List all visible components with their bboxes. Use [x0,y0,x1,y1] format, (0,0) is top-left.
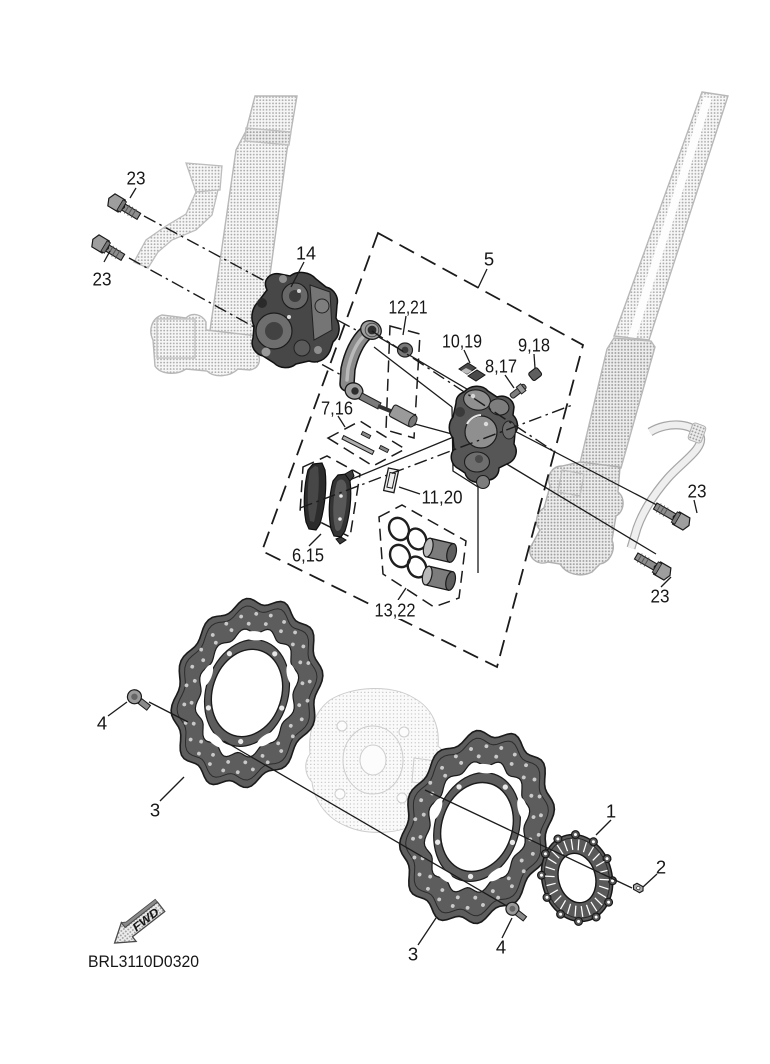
svg-text:1: 1 [606,801,616,822]
svg-text:2: 2 [656,857,666,878]
svg-text:5: 5 [484,249,494,270]
svg-text:8,17: 8,17 [485,356,517,377]
svg-text:3: 3 [408,944,418,965]
svg-text:12,21: 12,21 [389,297,428,318]
svg-text:23: 23 [127,168,146,189]
svg-text:4: 4 [496,937,506,958]
svg-text:23: 23 [93,269,112,290]
svg-text:6,15: 6,15 [292,545,324,566]
svg-text:3: 3 [150,800,160,821]
svg-text:4: 4 [97,713,107,734]
svg-text:11,20: 11,20 [422,487,463,508]
svg-text:23: 23 [651,586,670,607]
svg-text:10,19: 10,19 [442,331,482,352]
svg-text:14: 14 [296,243,316,264]
svg-text:BRL3110D0320: BRL3110D0320 [88,953,199,971]
svg-text:7,16: 7,16 [321,398,353,419]
svg-text:23: 23 [688,481,707,502]
svg-text:13,22: 13,22 [375,600,416,621]
svg-text:9,18: 9,18 [518,335,550,356]
